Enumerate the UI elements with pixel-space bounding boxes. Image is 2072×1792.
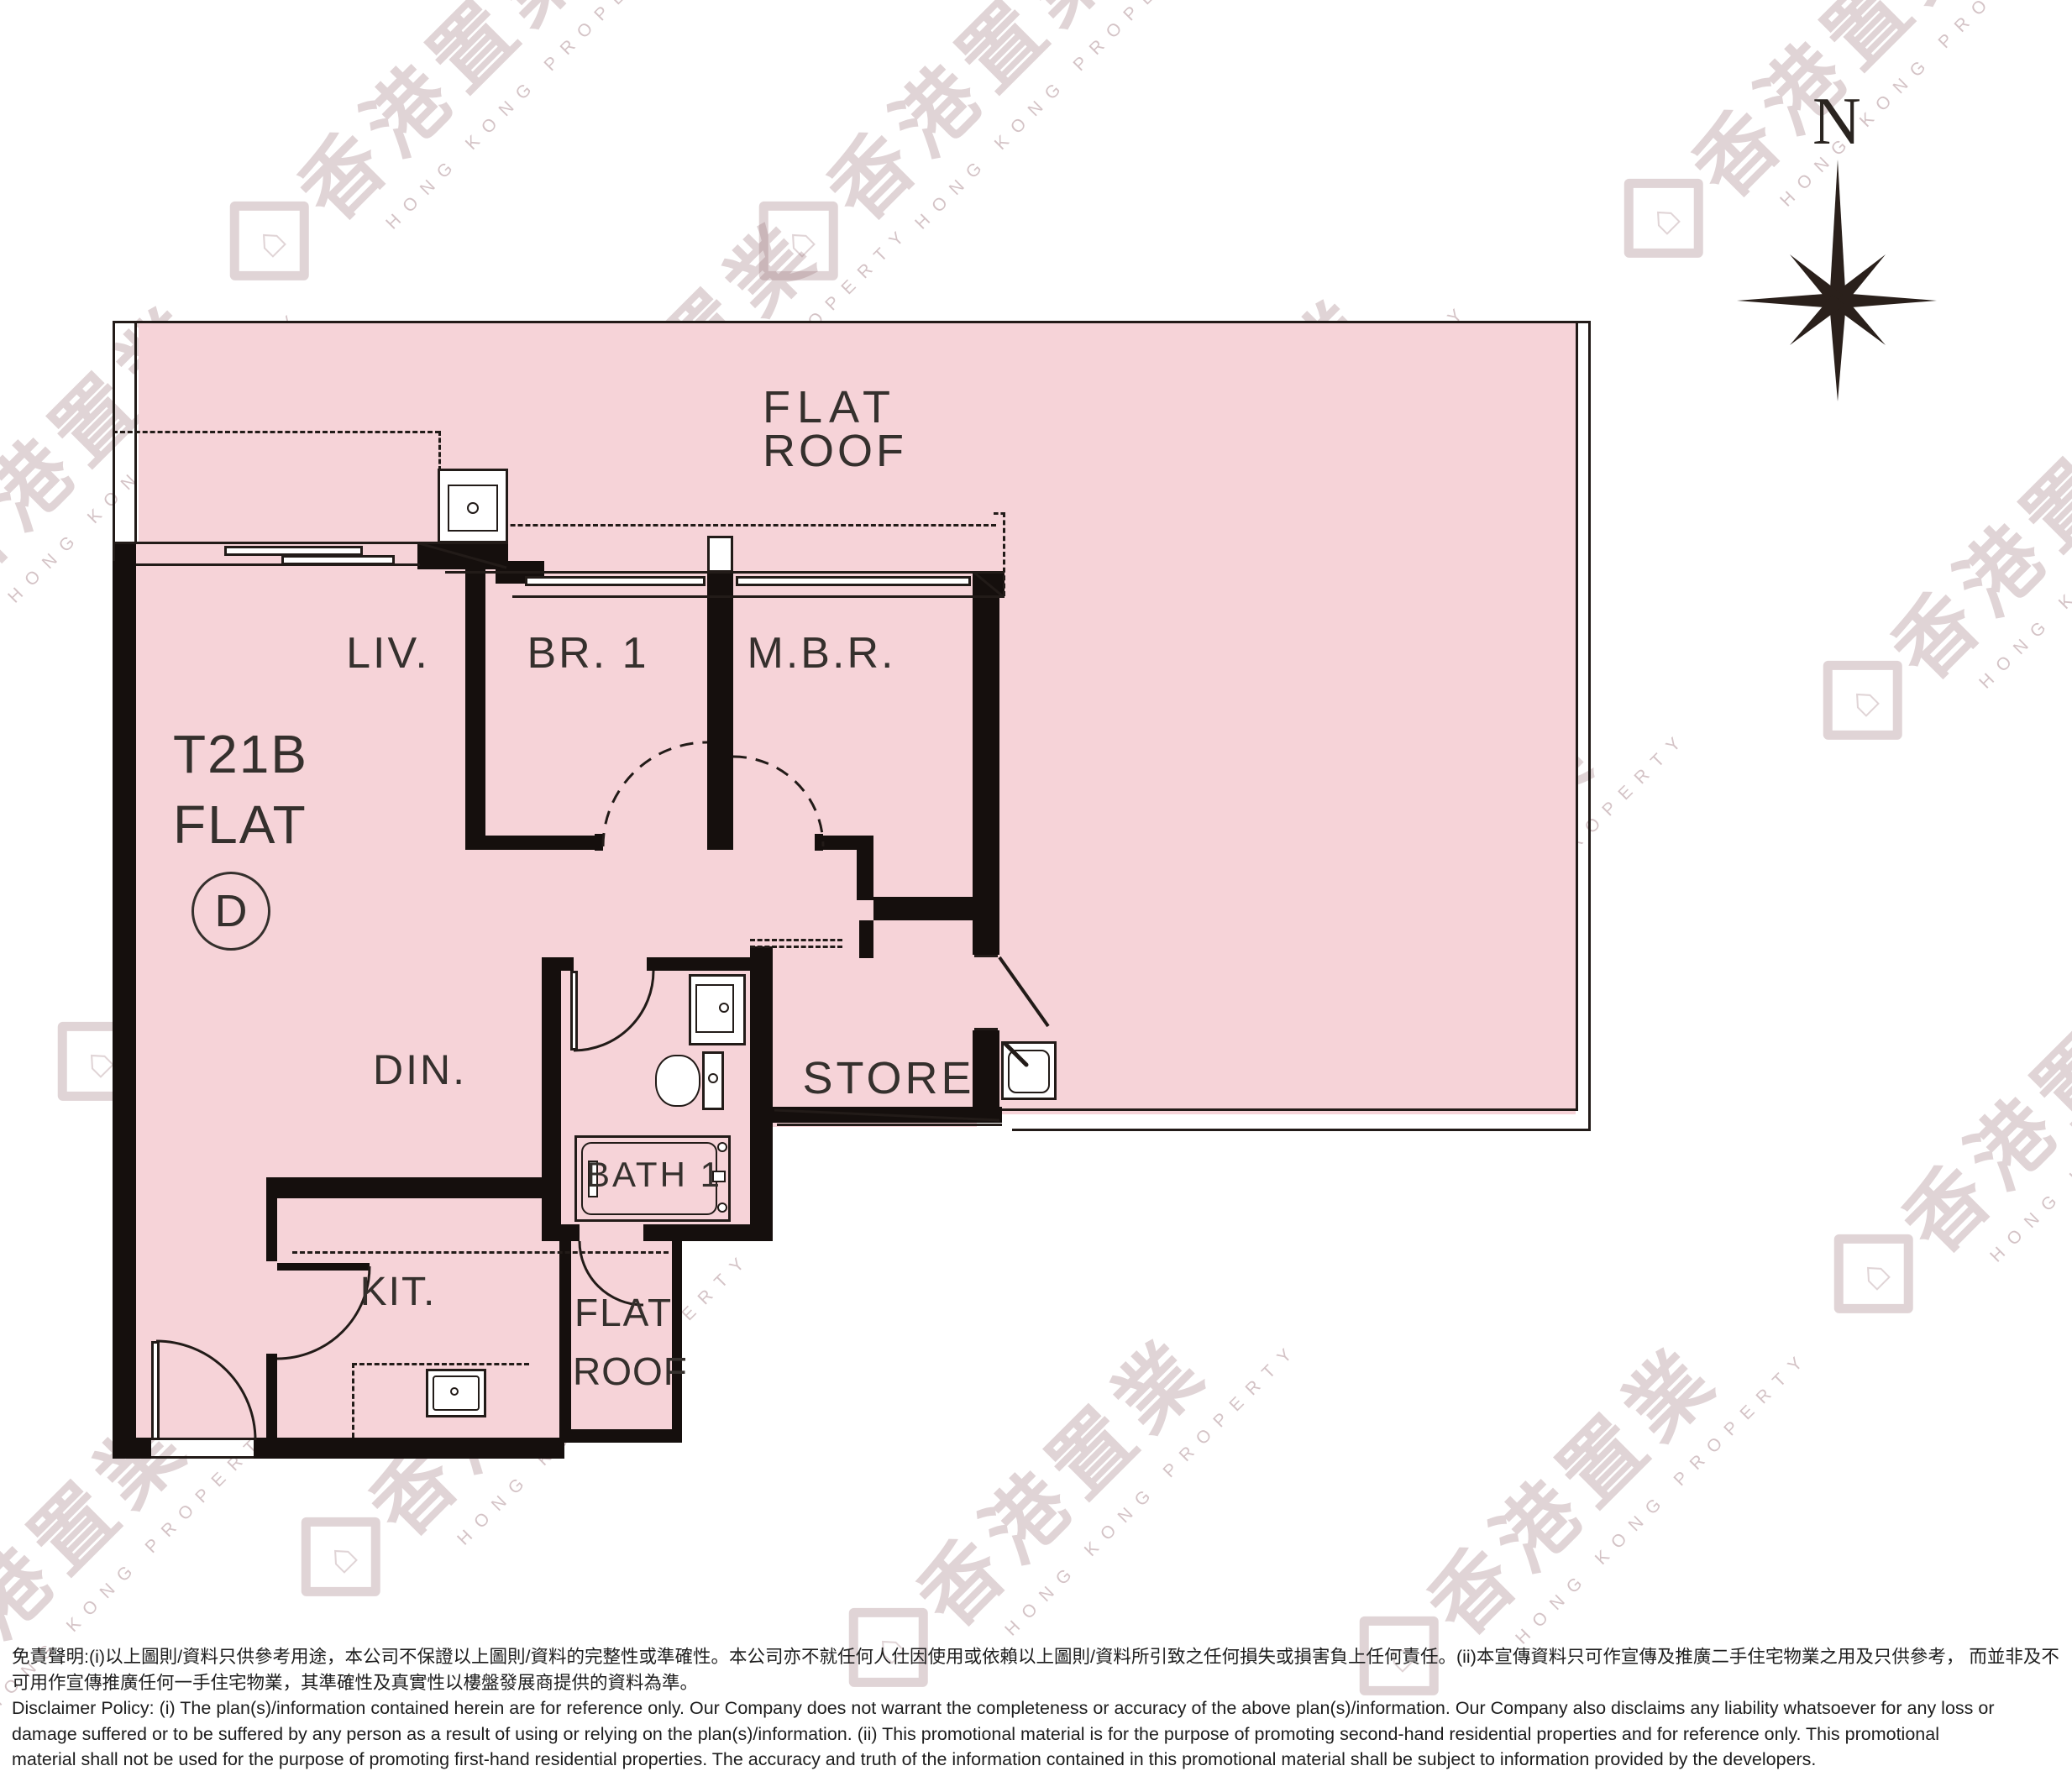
line-segment: [1012, 1129, 1591, 1131]
flat-letter-text: D: [215, 885, 248, 937]
label-master-bedroom: M.B.R.: [747, 631, 896, 675]
dashed-line: [352, 1363, 354, 1438]
wall-segment: [973, 571, 1005, 598]
watermark-cjk-text: 香港置業: [268, 0, 611, 242]
disclaimer-block: 免責聲明:(i)以上圖則/資料只供參考用途，本公司不保證以上圖則/資料的完整性或…: [12, 1644, 2064, 1773]
label-flat-roof-main-line2: ROOF: [763, 428, 907, 474]
watermark-cjk-text: 香港置業: [1861, 358, 2072, 701]
watermark-diamond-house-icon: ⌂: [758, 201, 837, 280]
dashed-line: [352, 1363, 529, 1365]
dashed-line: [750, 939, 842, 941]
watermark-latin-text: HONG KONG PROPERTY: [1001, 1341, 1300, 1640]
toilet-flush: [708, 1073, 718, 1083]
wall-segment: [595, 834, 603, 851]
door-opening: [580, 1224, 643, 1241]
watermark-logo: ⌂香港置業HONG KONG PROPERTY: [1804, 880, 2072, 1379]
label-bath: BATH 1: [586, 1157, 722, 1192]
line-segment: [512, 595, 1005, 598]
wall-segment: [773, 1107, 1002, 1123]
compass-star: [1737, 160, 1937, 401]
watermark-cjk-text: 香港置業: [1398, 1313, 1741, 1657]
line-segment: [1576, 321, 1578, 1111]
bathtub-faucet-dot: [717, 1203, 727, 1213]
dashed-line: [750, 946, 842, 948]
watermark-diamond-house-icon: ⌂: [229, 201, 308, 280]
window-bar: [736, 576, 971, 586]
wall-segment: [672, 1241, 682, 1441]
disclaimer-line: Disclaimer Policy: (i) The plan(s)/infor…: [12, 1695, 2064, 1721]
window-bar: [525, 576, 706, 586]
line-segment: [151, 1456, 254, 1459]
watermark-logo: ⌂香港置業HONG KONG PROPERTY: [729, 0, 1228, 346]
line-segment: [151, 1438, 254, 1440]
label-unit-tower: T21B: [173, 727, 308, 781]
line-segment: [777, 1124, 1002, 1126]
shaft-box: [707, 536, 733, 573]
wall-segment: [113, 1438, 151, 1459]
wall-segment: [859, 920, 873, 958]
bath-door-leaf: [570, 971, 578, 1051]
watermark-cjk-text: 香港置業: [887, 1305, 1230, 1648]
wall-segment: [123, 1304, 136, 1313]
watermark-cjk-text: 香港置業: [797, 0, 1141, 242]
watermark-diamond-house-icon: ⌂: [1823, 660, 1902, 739]
watermark-latin-text: HONG KONG PROPERTY: [911, 0, 1210, 233]
label-unit-flat-letter: D: [191, 872, 270, 951]
compass-north-label: N: [1812, 84, 1861, 160]
toilet-bowl: [655, 1055, 700, 1107]
label-unit-flat-word: FLAT: [173, 798, 307, 851]
watermark-cjk-text: 香港置業: [1872, 931, 2072, 1275]
floor-area: [136, 1241, 563, 1438]
wall-segment: [559, 1429, 682, 1443]
bathtub-faucet-dot: [717, 1142, 727, 1152]
wall-segment: [266, 1354, 277, 1438]
window-bar: [281, 555, 395, 565]
watermark-latin-text: HONG KONG PROPERTY: [1986, 967, 2072, 1266]
kitchen-sink-drain: [450, 1387, 459, 1396]
wall-segment: [750, 946, 773, 1241]
wall-segment: [857, 850, 873, 900]
wall-segment: [973, 598, 999, 955]
disclaimer-line: damage suffered or to be suffered by any…: [12, 1721, 2064, 1747]
watermark-diamond-house-icon: ⌂: [1833, 1234, 1912, 1313]
dashed-line: [292, 1251, 669, 1254]
watermark-diamond-house-icon: ⌂: [301, 1517, 380, 1596]
exterior-sink-inner: [1008, 1050, 1050, 1093]
sink-drain: [467, 502, 479, 514]
wall-segment: [266, 1177, 544, 1198]
wall-segment: [823, 836, 873, 850]
watermark-logo: ⌂香港置業HONG KONG PROPERTY: [1793, 307, 2072, 805]
line-segment: [974, 1028, 998, 1030]
dashed-line: [113, 431, 440, 433]
wall-segment: [542, 1224, 773, 1241]
disclaimer-line: 可用作宣傳推廣任何一手住宅物業，其準確性及真實性以樓盤發展商提供的資料為準。: [12, 1670, 2064, 1696]
watermark-diamond-house-icon: ⌂: [1624, 178, 1702, 257]
watermark-latin-text: HONG KONG PROPERTY: [1975, 394, 2072, 693]
wall-segment: [465, 836, 603, 850]
wall-segment: [417, 542, 508, 569]
label-bedroom1: BR. 1: [527, 631, 648, 675]
watermark-latin-text: HONG KONG PROPERTY: [382, 0, 681, 233]
wall-segment: [707, 571, 733, 850]
label-living: LIV.: [346, 631, 430, 675]
line-segment: [974, 955, 998, 957]
wall-segment: [254, 1438, 564, 1459]
disclaimer-line: 免責聲明:(i)以上圖則/資料只供參考用途，本公司不保證以上圖則/資料的完整性或…: [12, 1644, 2064, 1670]
watermark-logo: ⌂香港置業HONG KONG PROPERTY: [200, 0, 699, 346]
watermark-logo: ⌂香港置業HONG KONG PROPERTY: [1594, 0, 2072, 323]
wall-segment: [815, 834, 823, 851]
label-flat-roof-small-line2: ROOF: [573, 1352, 688, 1391]
wall-segment: [465, 567, 485, 850]
line-segment: [1588, 321, 1591, 1131]
dashed-line: [438, 431, 441, 471]
wall-segment: [542, 957, 574, 971]
wall-segment: [559, 1241, 571, 1441]
wall-segment: [277, 1263, 370, 1271]
disclaimer-line: material shall not be used for the purpo…: [12, 1747, 2064, 1773]
watermark-latin-text: HONG KONG PROPERTY: [1512, 1349, 1811, 1648]
label-store: STORE: [802, 1056, 974, 1101]
label-flat-roof-main-line1: FLAT: [763, 385, 897, 430]
line-segment: [113, 321, 115, 561]
floor-area: [974, 321, 1576, 1114]
floor-area: [571, 1241, 672, 1441]
basin-faucet: [719, 1003, 729, 1013]
dashed-line: [1003, 512, 1005, 596]
label-kitchen: KIT.: [360, 1272, 437, 1313]
label-dining: DIN.: [373, 1049, 467, 1091]
dashed-line: [458, 524, 996, 527]
wall-segment: [266, 1198, 277, 1261]
wall-segment: [542, 957, 561, 1241]
label-flat-roof-small-line1: FLAT: [574, 1293, 673, 1332]
line-segment: [1002, 1108, 1576, 1111]
line-segment: [113, 321, 1590, 323]
entry-door-leaf: [151, 1341, 160, 1440]
floor-plan-page: ⌂香港置業HONG KONG PROPERTY⌂香港置業HONG KONG PR…: [0, 0, 2072, 1792]
